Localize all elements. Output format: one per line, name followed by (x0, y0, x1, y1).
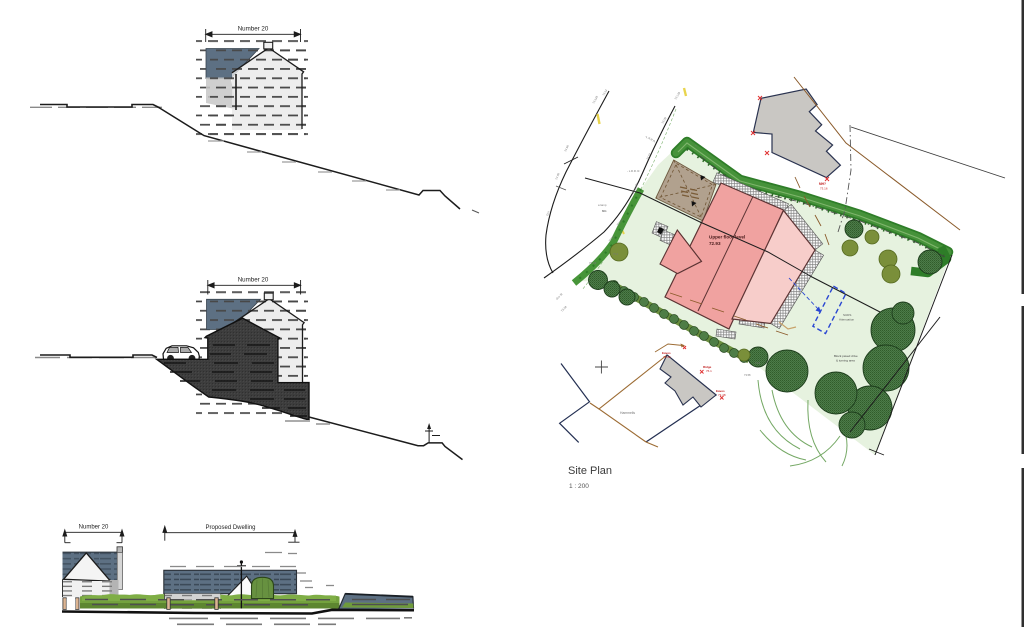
svg-text:MH?: MH? (819, 182, 826, 186)
svg-text:Proposed Dwelling: Proposed Dwelling (205, 525, 255, 531)
svg-text:- L.R.R. R.: - L.R.R. R. (627, 169, 640, 173)
svg-text:73.48: 73.48 (718, 393, 726, 397)
svg-text:Number 20: Number 20 (238, 26, 269, 33)
svg-text:73.38: 73.38 (663, 355, 671, 359)
svg-text:73.5: 73.5 (755, 361, 761, 365)
svg-text:Number 20: Number 20 (238, 277, 269, 284)
svg-text:Hammells: Hammells (620, 411, 635, 415)
svg-text:SUDS: SUDS (843, 313, 851, 317)
svg-text:76.1: 76.1 (706, 369, 712, 373)
svg-text:1 : 200: 1 : 200 (569, 483, 589, 490)
svg-text:Block paved drive: Block paved drive (834, 354, 858, 358)
svg-text:MG: MG (602, 209, 607, 213)
svg-text:Upper floor level: Upper floor level (709, 235, 745, 240)
svg-text:a lamp: a lamp (598, 203, 607, 207)
svg-text:73.58: 73.58 (744, 373, 751, 377)
svg-text:& turning area: & turning area (836, 359, 855, 363)
svg-text:Number 20: Number 20 (79, 525, 109, 531)
svg-text:73.03: 73.03 (589, 261, 596, 265)
svg-text:73.3: 73.3 (613, 252, 619, 256)
svg-text:Attenuation: Attenuation (839, 318, 855, 322)
svg-text:Site Plan: Site Plan (568, 465, 612, 477)
svg-text:73.16: 73.16 (820, 187, 828, 191)
svg-text:72.93: 72.93 (709, 241, 721, 246)
